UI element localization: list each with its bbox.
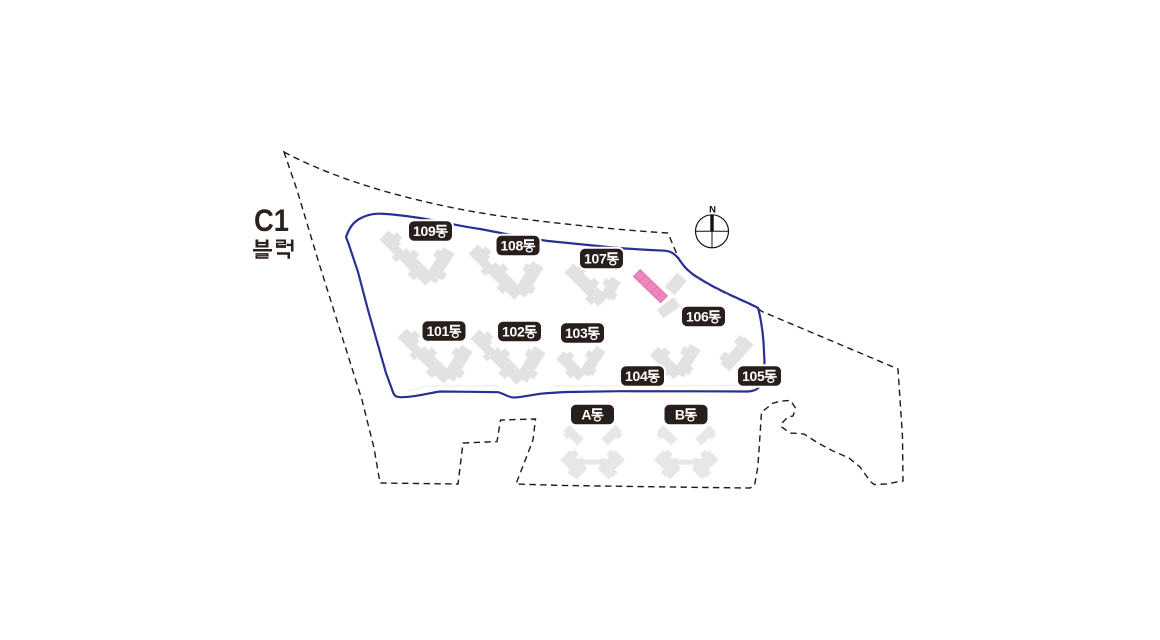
svg-text:C1: C1 — [254, 202, 289, 238]
svg-text:108: 108 — [500, 238, 523, 254]
svg-text:105: 105 — [742, 368, 765, 384]
svg-text:B: B — [675, 407, 685, 423]
svg-text:N: N — [709, 204, 716, 215]
svg-text:101: 101 — [426, 323, 449, 339]
svg-text:A: A — [581, 407, 591, 423]
svg-text:107: 107 — [584, 251, 607, 267]
svg-text:102: 102 — [502, 324, 525, 340]
svg-text:104: 104 — [625, 368, 648, 384]
svg-text:103: 103 — [565, 325, 588, 341]
svg-text:109: 109 — [413, 223, 436, 239]
svg-text:106: 106 — [686, 309, 709, 325]
